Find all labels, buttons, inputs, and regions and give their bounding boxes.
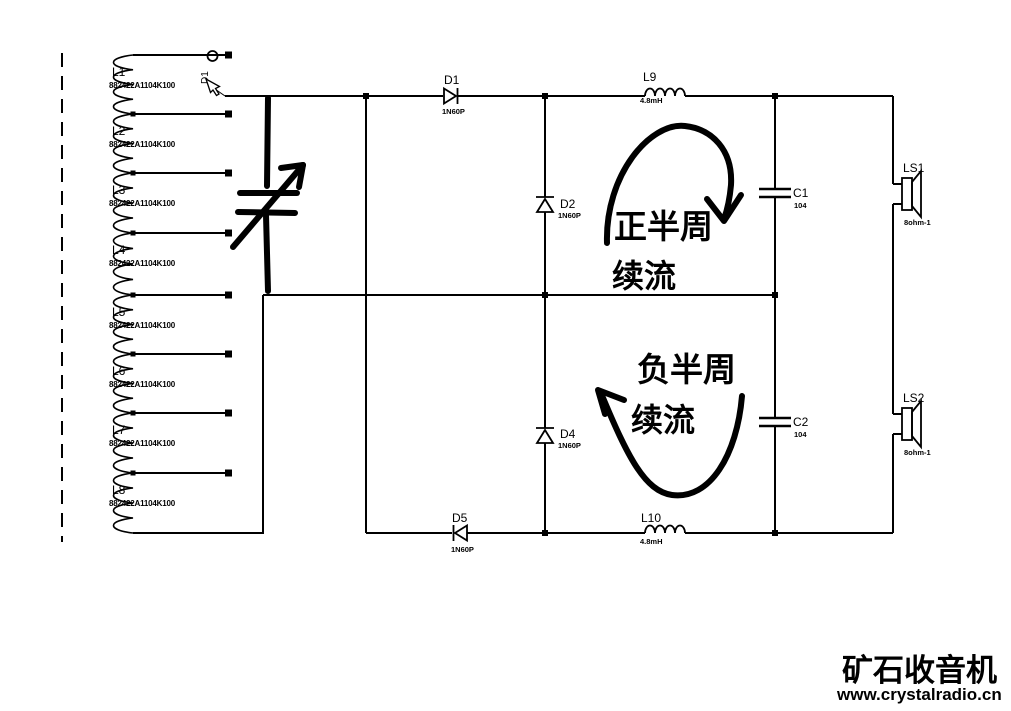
circuit-wires	[133, 96, 902, 533]
inductor-l10: L10 4.8mH	[640, 511, 685, 546]
d4-ref: D4	[560, 427, 576, 441]
coil-ref: L3	[112, 183, 126, 197]
site-watermark: 矿石收音机 www.crystalradio.cn	[836, 653, 1002, 704]
watermark-site-name: 矿石收音机	[842, 653, 997, 689]
d2-type: 1N60P	[558, 211, 581, 220]
cad-cursor-group: D1	[200, 51, 225, 96]
c1-value: 104	[794, 201, 807, 210]
c2-value: 104	[794, 430, 807, 439]
annotation-negative-line1: 负半周	[637, 350, 736, 389]
coil-ref: L4	[112, 243, 126, 257]
crystal-radio-schematic: L1 882422A1104K100 L2 882422A1104K100 L3…	[0, 0, 1011, 711]
coil-part: 882422A1104K100	[109, 140, 176, 149]
schematic-page: L1 882422A1104K100 L2 882422A1104K100 L3…	[0, 0, 1011, 711]
inductor-l9: L9 4.8mH	[640, 70, 685, 105]
variable-capacitor-sketch	[233, 98, 303, 291]
d5-ref: D5	[452, 511, 468, 525]
coil-ref: L1	[112, 65, 126, 79]
coil-part: 882422A1104K100	[109, 199, 176, 208]
ls2-value: 8ohm-1	[904, 448, 931, 457]
diode-d4: D4 1N60P	[536, 427, 581, 450]
coil-part: 882422A1104K100	[109, 439, 176, 448]
coil-ref: L7	[112, 423, 126, 437]
coil-part: 882422A1104K100	[109, 499, 176, 508]
coil-part: 882422A1104K100	[109, 81, 176, 90]
capacitor-c1: C1 104	[759, 186, 809, 210]
coil-ref: L5	[112, 305, 126, 319]
mouse-cursor-icon	[206, 79, 220, 96]
d2-ref: D2	[560, 197, 576, 211]
coil-ref: L6	[112, 364, 126, 378]
d1-ref: D1	[444, 73, 460, 87]
ls2-ref: LS2	[903, 391, 925, 405]
speaker-ls1: LS1 8ohm-1	[902, 161, 931, 227]
ls1-value: 8ohm-1	[904, 218, 931, 227]
tank-coil: L1 882422A1104K100 L2 882422A1104K100 L3…	[109, 52, 232, 534]
d1-type: 1N60P	[442, 107, 465, 116]
l9-ref: L9	[643, 70, 657, 84]
speaker-ls2: LS2 8ohm-1	[902, 391, 931, 457]
annotation-negative-line2: 续流	[631, 401, 695, 439]
l10-value: 4.8mH	[640, 537, 663, 546]
coil-part: 882422A1104K100	[109, 321, 176, 330]
c1-ref: C1	[793, 186, 809, 200]
coil-ref: L8	[112, 483, 126, 497]
annotation-positive-line2: 续流	[612, 257, 676, 295]
c2-ref: C2	[793, 415, 809, 429]
ls1-ref: LS1	[903, 161, 925, 175]
watermark-site-url: www.crystalradio.cn	[836, 685, 1002, 704]
d5-type: 1N60P	[451, 545, 474, 554]
l9-value: 4.8mH	[640, 96, 663, 105]
coil-labels: L1 882422A1104K100 L2 882422A1104K100 L3…	[109, 65, 176, 508]
coil-part: 882422A1104K100	[109, 380, 176, 389]
diode-d2: D2 1N60P	[536, 197, 581, 220]
capacitor-c2: C2 104	[759, 415, 809, 439]
l10-ref: L10	[641, 511, 661, 525]
diode-d1: D1 1N60P	[442, 73, 465, 116]
annotation-positive-line1: 正半周	[614, 207, 713, 246]
coil-part: 882422A1104K100	[109, 259, 176, 268]
coil-ref: L2	[112, 124, 126, 138]
d4-type: 1N60P	[558, 441, 581, 450]
